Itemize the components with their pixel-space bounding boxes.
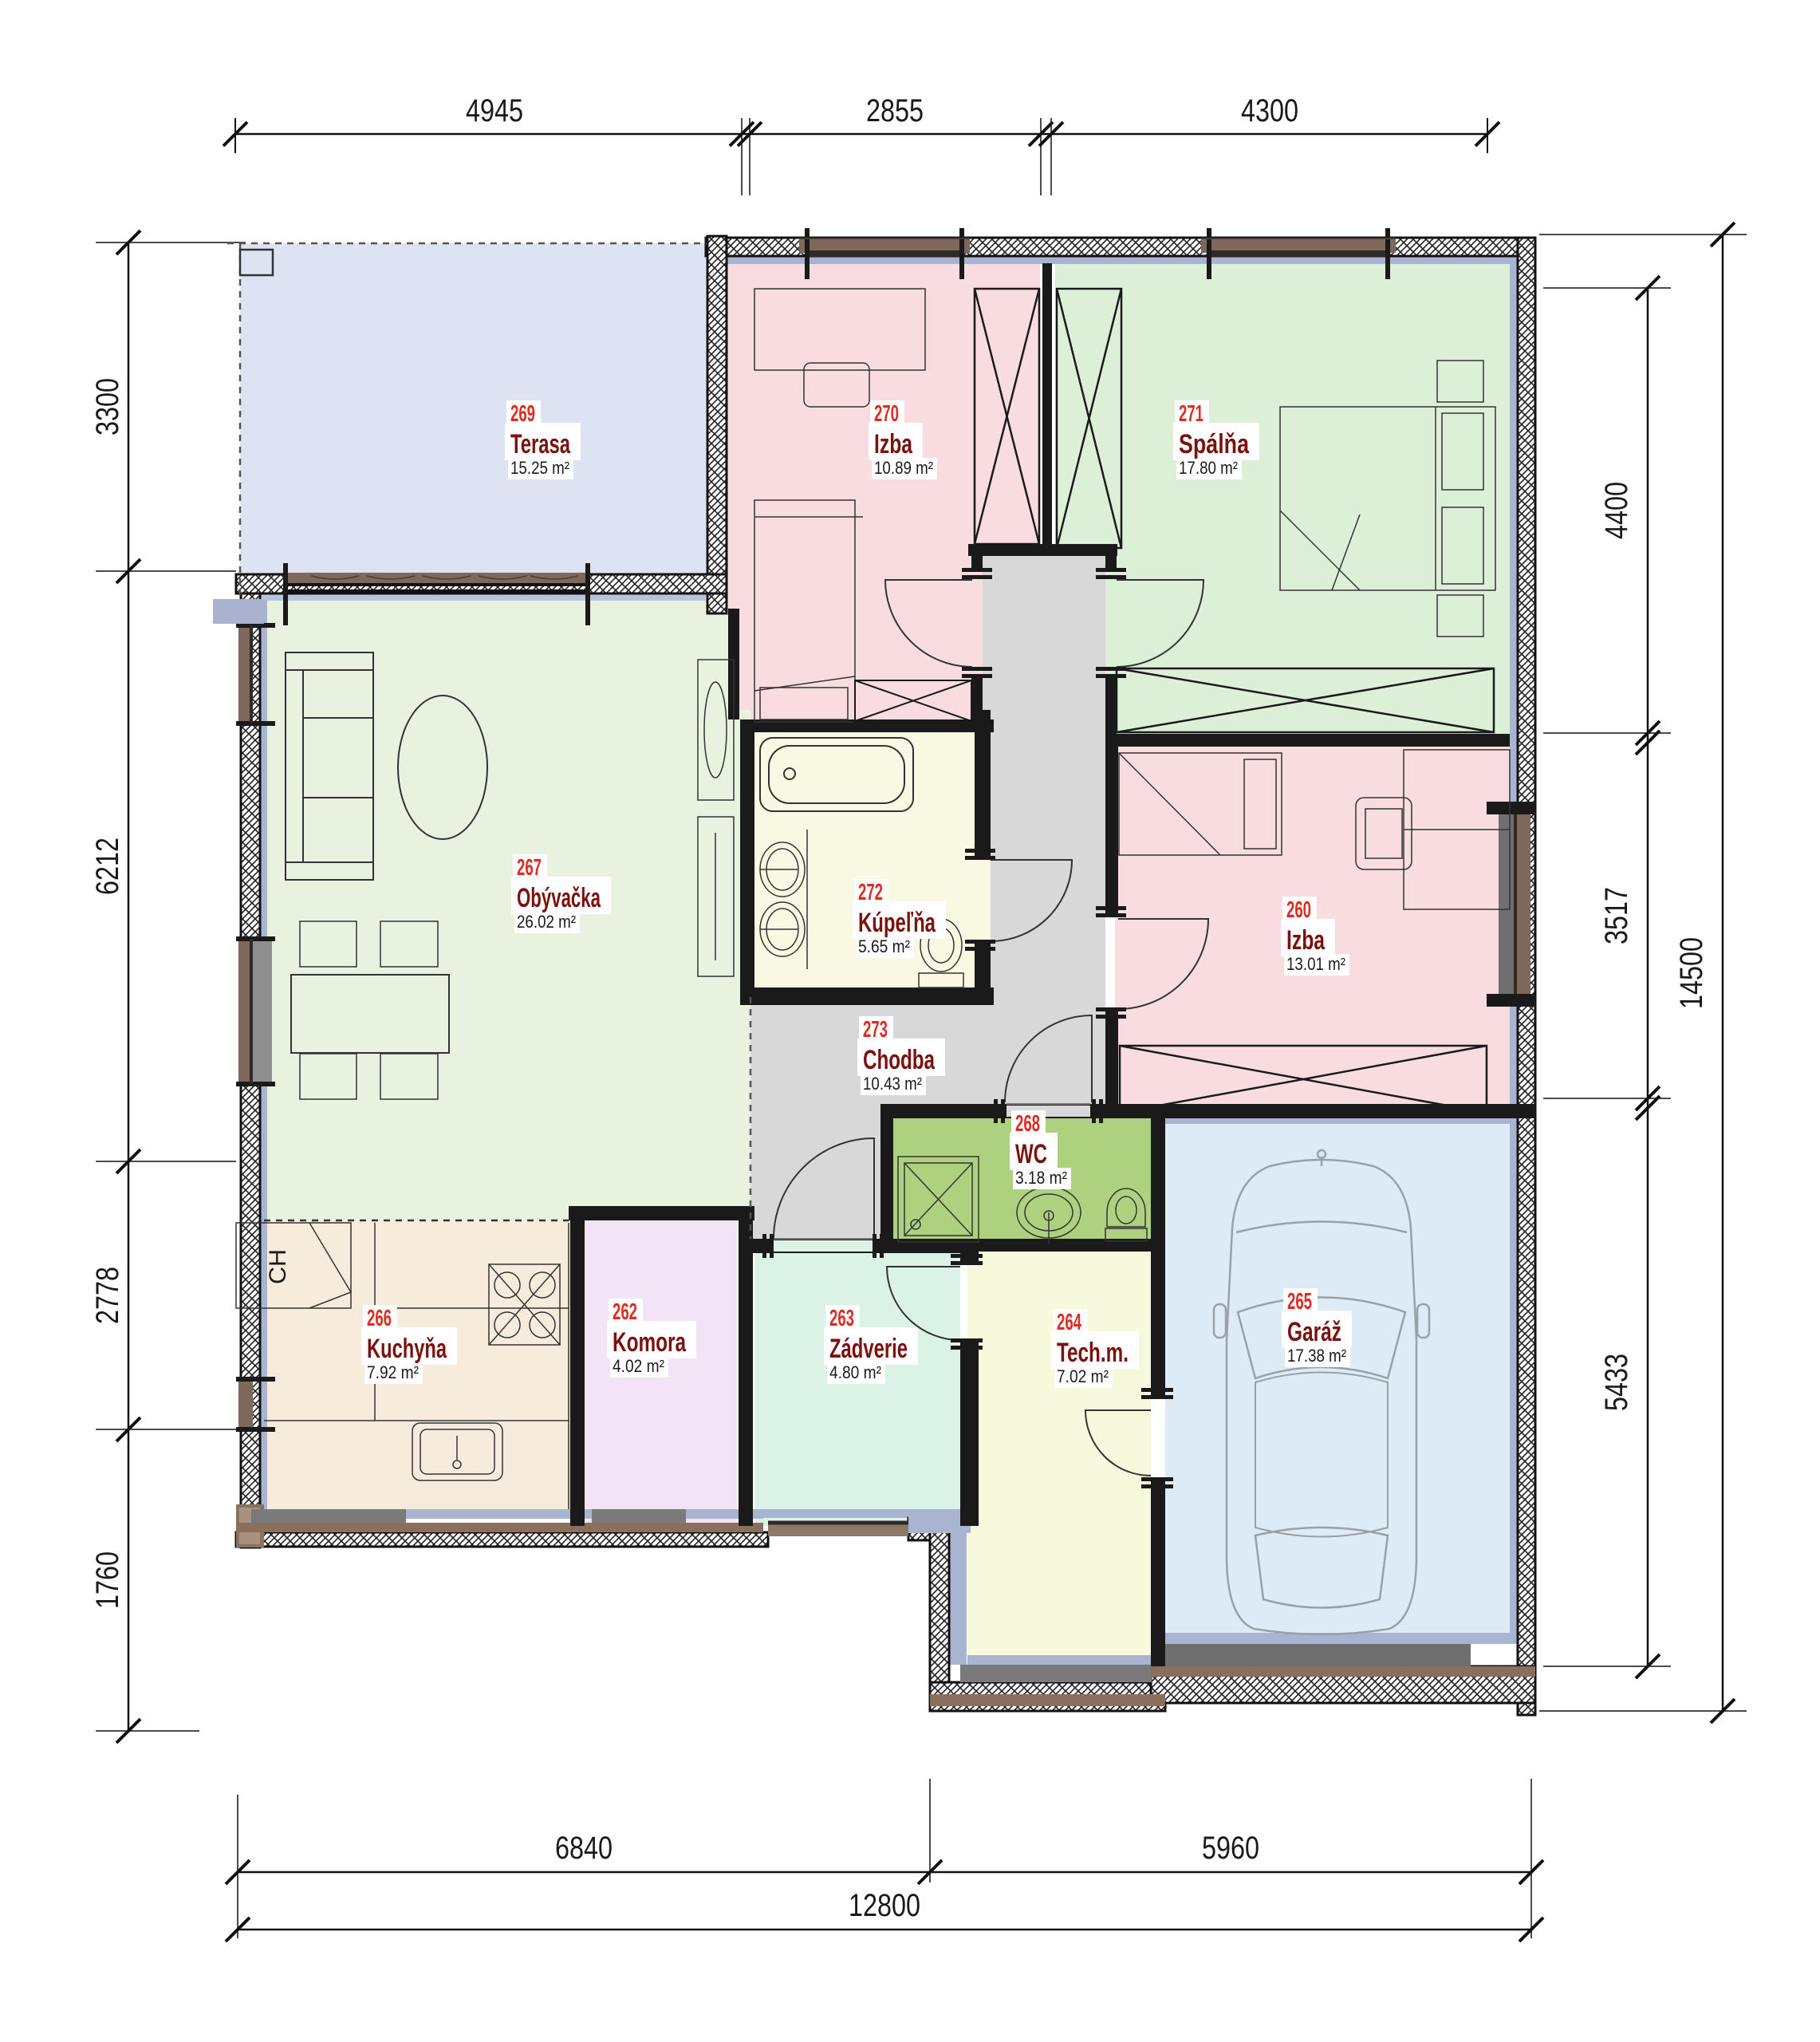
svg-text:271: 271 <box>1179 401 1203 427</box>
svg-text:Terasa: Terasa <box>510 429 571 459</box>
svg-text:5960: 5960 <box>1202 1831 1259 1866</box>
svg-text:Kúpeľňa: Kúpeľňa <box>858 908 936 938</box>
svg-text:272: 272 <box>858 880 883 905</box>
svg-text:2855: 2855 <box>866 93 924 128</box>
svg-text:Kuchyňa: Kuchyňa <box>367 1334 447 1364</box>
svg-text:3300: 3300 <box>90 378 125 436</box>
svg-text:4400: 4400 <box>1599 482 1634 539</box>
svg-text:13.01 m²: 13.01 m² <box>1286 954 1345 974</box>
svg-text:4.02 m²: 4.02 m² <box>613 1356 664 1376</box>
svg-text:Obývačka: Obývačka <box>517 883 601 913</box>
svg-text:6840: 6840 <box>555 1831 613 1866</box>
svg-text:12800: 12800 <box>849 1888 920 1923</box>
svg-text:Izba: Izba <box>874 429 913 459</box>
svg-text:4300: 4300 <box>1241 93 1298 128</box>
svg-text:WC: WC <box>1015 1139 1047 1169</box>
svg-text:Zádverie: Zádverie <box>829 1334 908 1364</box>
svg-text:1760: 1760 <box>90 1551 125 1609</box>
svg-text:17.38 m²: 17.38 m² <box>1287 1346 1346 1366</box>
svg-text:14500: 14500 <box>1674 937 1709 1009</box>
svg-text:CH: CH <box>265 1249 291 1284</box>
svg-text:3517: 3517 <box>1599 887 1634 944</box>
svg-text:15.25 m²: 15.25 m² <box>510 458 569 478</box>
svg-text:10.89 m²: 10.89 m² <box>874 458 933 478</box>
svg-text:7.92 m²: 7.92 m² <box>367 1362 419 1382</box>
svg-text:Spálňa: Spálňa <box>1179 429 1250 459</box>
svg-text:7.02 m²: 7.02 m² <box>1057 1366 1109 1386</box>
svg-text:273: 273 <box>863 1017 888 1043</box>
svg-text:Tech.m.: Tech.m. <box>1057 1338 1129 1368</box>
svg-text:5.65 m²: 5.65 m² <box>858 936 910 956</box>
svg-text:262: 262 <box>613 1299 637 1325</box>
svg-text:270: 270 <box>874 401 899 427</box>
svg-text:260: 260 <box>1286 897 1311 923</box>
svg-text:Izba: Izba <box>1286 925 1326 956</box>
svg-text:264: 264 <box>1057 1310 1081 1335</box>
svg-text:5433: 5433 <box>1599 1354 1634 1411</box>
svg-text:17.80 m²: 17.80 m² <box>1179 458 1238 478</box>
svg-text:6212: 6212 <box>90 838 125 895</box>
svg-text:26.02 m²: 26.02 m² <box>517 912 576 932</box>
svg-text:Garáž: Garáž <box>1287 1317 1341 1347</box>
svg-text:3.18 m²: 3.18 m² <box>1015 1168 1067 1188</box>
svg-text:4.80 m²: 4.80 m² <box>829 1362 881 1382</box>
svg-text:266: 266 <box>367 1306 392 1331</box>
svg-text:Komora: Komora <box>613 1327 687 1358</box>
svg-text:2778: 2778 <box>90 1267 125 1324</box>
svg-text:10.43 m²: 10.43 m² <box>863 1074 922 1094</box>
svg-text:4945: 4945 <box>466 93 523 128</box>
svg-text:263: 263 <box>829 1306 854 1331</box>
svg-text:265: 265 <box>1287 1289 1312 1315</box>
svg-text:Chodba: Chodba <box>863 1045 936 1075</box>
svg-text:267: 267 <box>517 855 542 881</box>
svg-text:269: 269 <box>510 401 535 427</box>
svg-text:268: 268 <box>1015 1111 1040 1137</box>
